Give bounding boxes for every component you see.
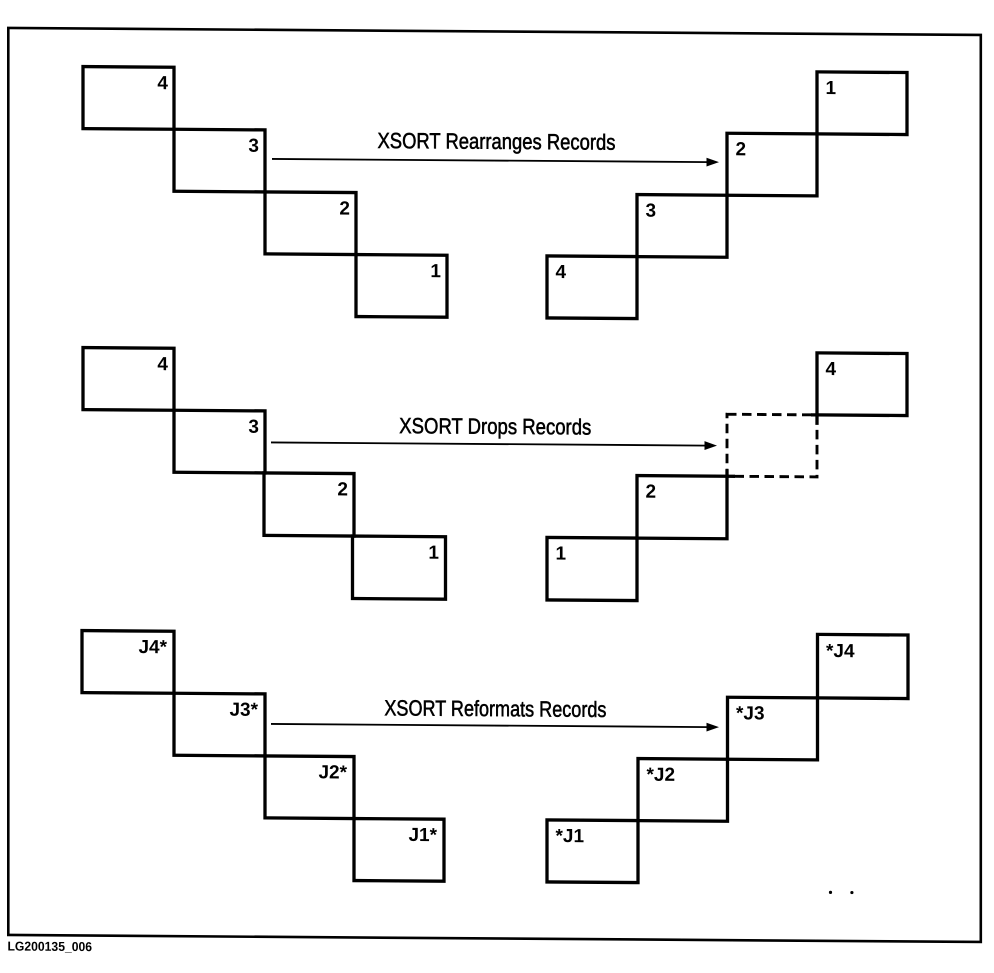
svg-text:1: 1 xyxy=(556,544,567,565)
svg-text:J4*: J4* xyxy=(138,637,167,658)
svg-text:XSORT Drops Records: XSORT Drops Records xyxy=(399,413,591,439)
svg-text:1: 1 xyxy=(826,78,837,99)
svg-text:*J3: *J3 xyxy=(736,703,765,724)
svg-text:J2*: J2* xyxy=(318,762,347,783)
svg-text:3: 3 xyxy=(646,201,657,222)
svg-text:4: 4 xyxy=(826,359,837,380)
svg-text:3: 3 xyxy=(248,136,259,157)
svg-text:4: 4 xyxy=(556,262,567,283)
svg-text:4: 4 xyxy=(157,73,168,94)
svg-text:*J4: *J4 xyxy=(826,641,855,662)
svg-text:2: 2 xyxy=(339,198,350,219)
svg-text:1: 1 xyxy=(430,261,441,282)
svg-text:*J2: *J2 xyxy=(647,765,676,786)
svg-text:J3*: J3* xyxy=(229,700,258,721)
svg-text:1: 1 xyxy=(428,543,439,564)
svg-text:*J1: *J1 xyxy=(556,826,585,847)
svg-text:3: 3 xyxy=(248,417,259,438)
svg-text:LG200135_006: LG200135_006 xyxy=(8,939,93,955)
svg-text:XSORT Rearranges Records: XSORT Rearranges Records xyxy=(378,128,616,155)
svg-text:2: 2 xyxy=(736,139,747,160)
svg-text:J1*: J1* xyxy=(408,825,437,846)
svg-text:2: 2 xyxy=(646,482,657,503)
svg-text:4: 4 xyxy=(157,354,168,375)
svg-text:2: 2 xyxy=(337,479,348,500)
svg-text:XSORT Reformats Records: XSORT Reformats Records xyxy=(384,695,606,722)
